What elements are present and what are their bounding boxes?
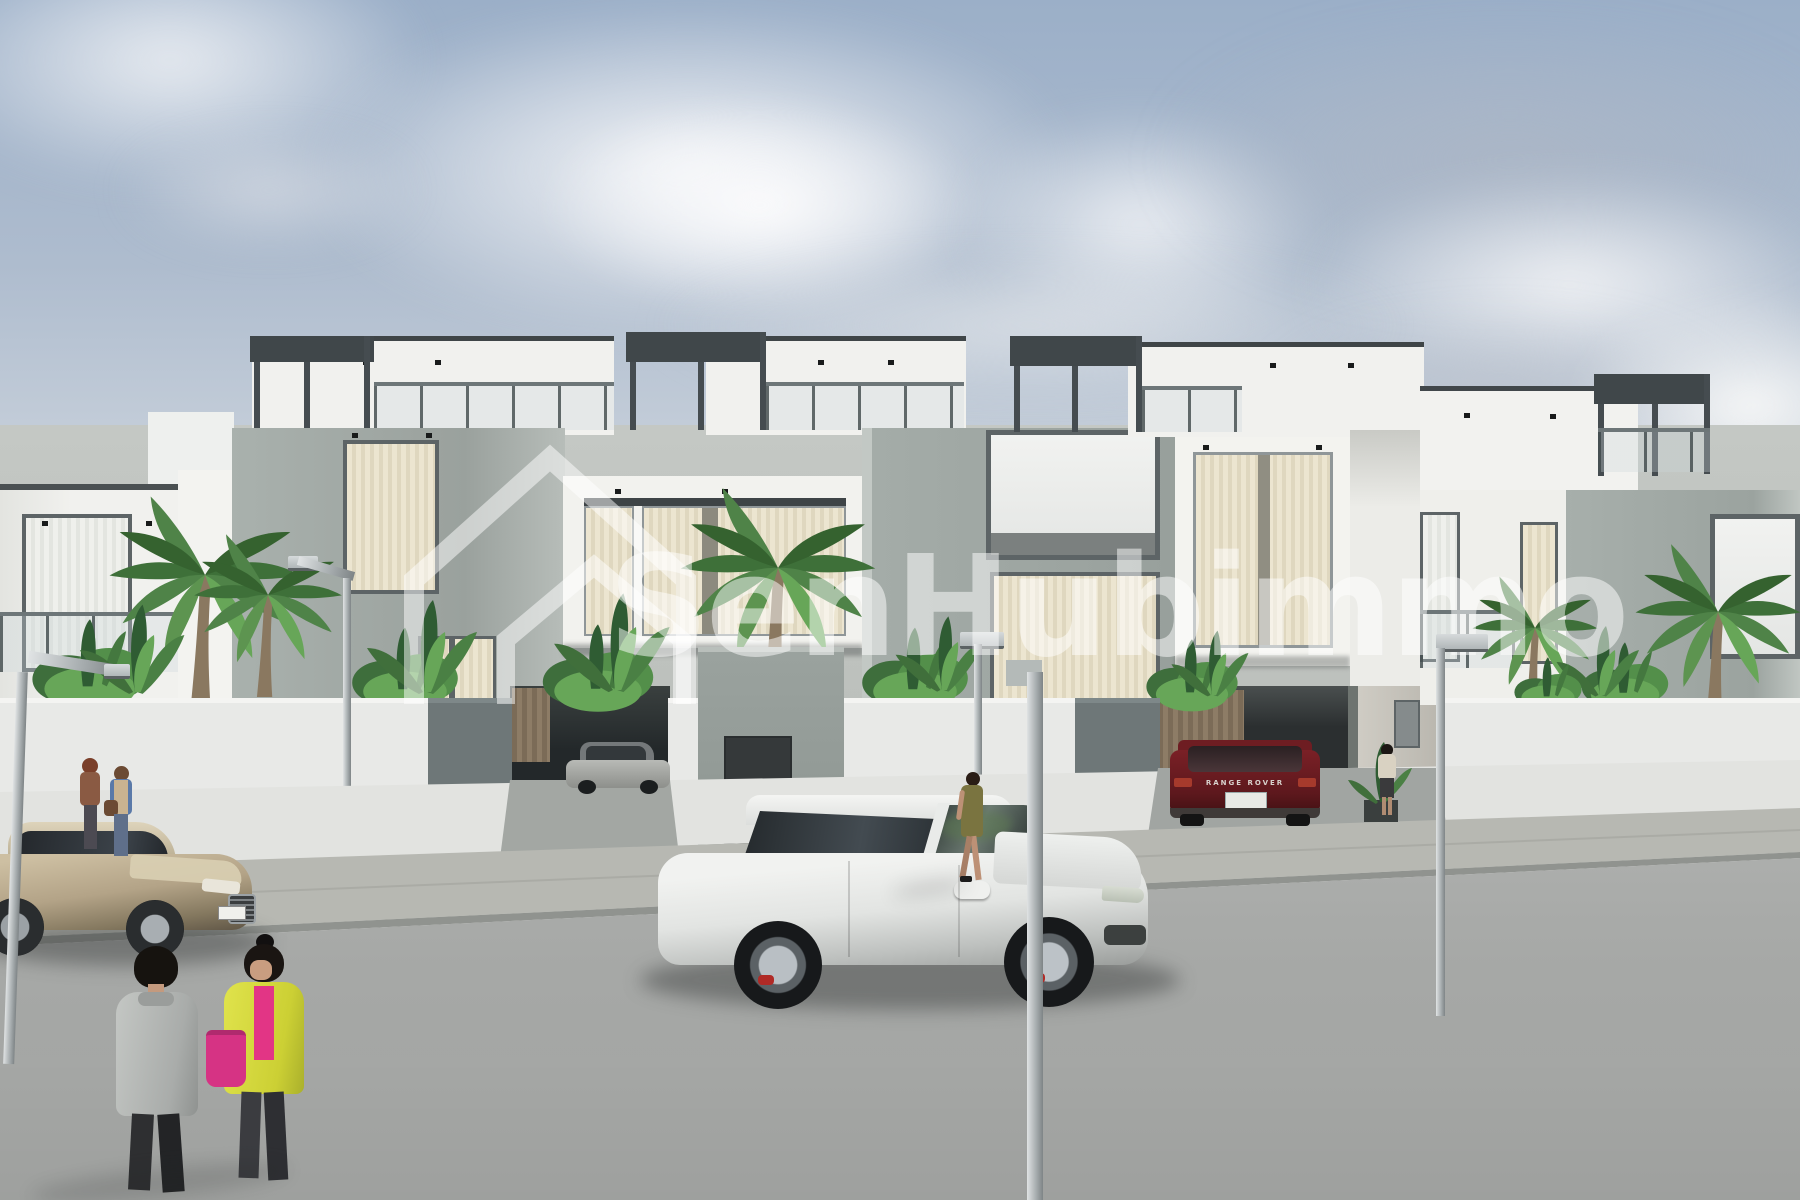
red-suv-rear-window <box>1188 746 1302 772</box>
suv-front-intake <box>1104 925 1146 945</box>
street-lamp-5-pole <box>1436 648 1445 1016</box>
entrance-woman-skirt <box>1380 778 1394 798</box>
suv-headlight <box>1102 886 1145 904</box>
man-coat <box>116 992 198 1116</box>
suv-door-seam <box>848 861 850 957</box>
red-suv-wheel-right <box>1286 814 1310 826</box>
olive-woman-leg-front <box>970 836 981 880</box>
woman-pink-top <box>254 986 274 1060</box>
woman-yellow-cardigan <box>216 934 312 1194</box>
parked-red-suv: RANGE ROVER <box>1170 740 1320 826</box>
olive-woman-hair <box>966 772 980 786</box>
entrance-woman-top <box>1378 754 1396 780</box>
silver-car-window <box>586 746 646 760</box>
woman-pink-handbag <box>206 1030 246 1087</box>
red-suv-license-plate <box>1225 792 1267 809</box>
red-suv-taillight-left <box>1174 778 1192 787</box>
street-lamp-4-pole <box>1027 672 1043 1200</box>
woman-face <box>250 960 272 980</box>
watermark-text: SenHubimmo <box>608 538 1508 678</box>
woman-olive-dress <box>952 772 992 892</box>
woman-blue-jeans <box>114 814 128 856</box>
white-suv <box>658 795 1150 1010</box>
red-suv-taillight-right <box>1298 778 1316 787</box>
suv-brake-caliper-rear <box>758 975 774 985</box>
street-lamp-1-head <box>104 664 130 679</box>
man-hair <box>134 946 178 988</box>
silver-car-wheel <box>578 780 596 794</box>
olive-woman-leg-back <box>959 836 972 878</box>
man-coat-collar <box>138 992 174 1006</box>
woman-at-entrance <box>1374 744 1400 816</box>
woman-auburn-top <box>80 772 100 806</box>
chatting-women-group <box>78 758 142 862</box>
red-suv-wheel-left <box>1180 814 1204 826</box>
man-gray-coat <box>112 946 204 1196</box>
render-canvas: SenHubimmo RANGE ROVER <box>0 0 1800 1200</box>
entrance-woman-legs <box>1382 797 1386 815</box>
suv-wheel-front <box>1004 917 1094 1007</box>
woman-auburn-legs <box>84 805 97 849</box>
red-suv-badge-text: RANGE ROVER <box>1198 779 1292 787</box>
entrance-woman-leg-2 <box>1388 797 1392 815</box>
sedan-license-plate <box>218 906 246 920</box>
silver-car-wheel-2 <box>640 780 658 794</box>
suv-hood <box>993 831 1144 891</box>
suv-wheel-rear <box>734 921 822 1009</box>
carport-silver-car <box>566 742 670 794</box>
